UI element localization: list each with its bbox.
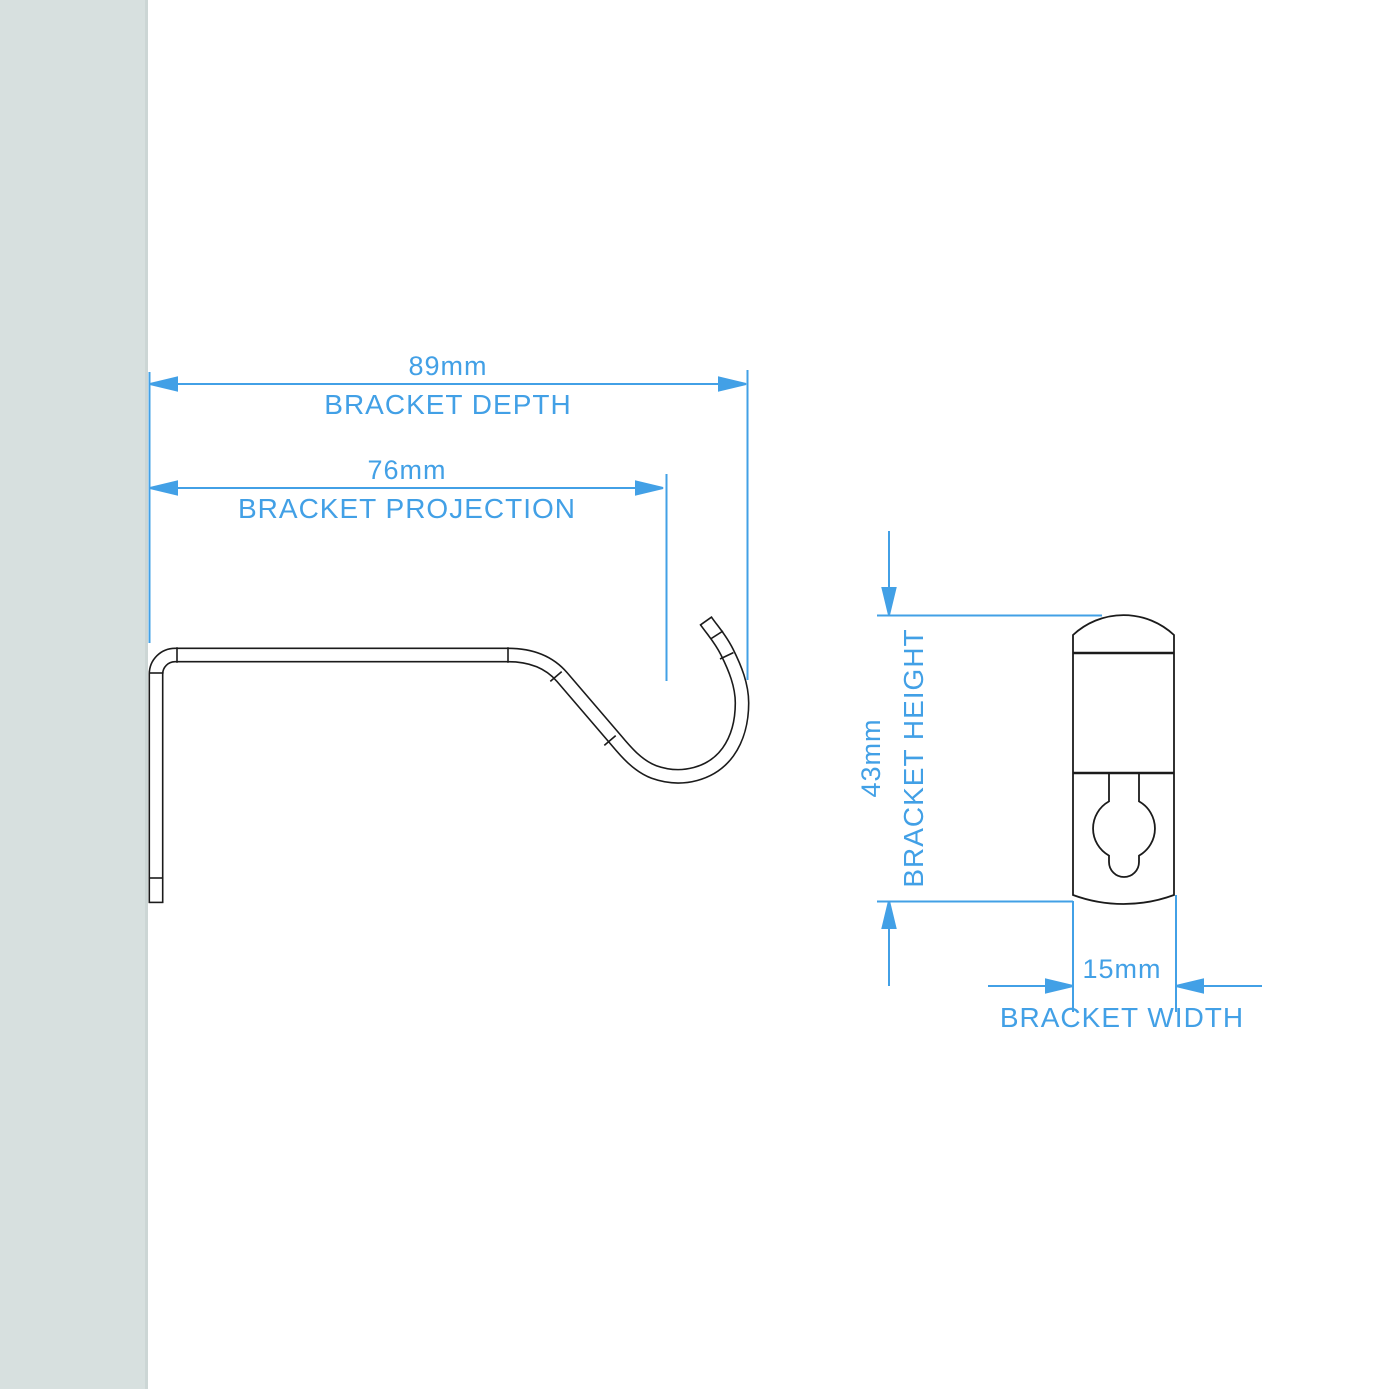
dimension-value: 76mm: [367, 455, 446, 485]
dimension-value: 43mm: [856, 718, 886, 797]
dimension-label: BRACKET PROJECTION: [238, 493, 576, 524]
dimension-label: BRACKET WIDTH: [1000, 1002, 1244, 1033]
dimension-arrow-icon: [150, 482, 177, 495]
dimension-height: 43mm BRACKET HEIGHT: [856, 531, 1102, 986]
dimension-label: BRACKET DEPTH: [324, 389, 571, 420]
dimension-arrow-icon: [636, 482, 663, 495]
dimension-arrow-icon: [883, 588, 896, 615]
dimension-label: BRACKET HEIGHT: [898, 628, 929, 887]
bracket-front-view: [1073, 615, 1174, 904]
dimension-arrow-icon: [1176, 980, 1203, 993]
dimension-value: 89mm: [408, 351, 487, 381]
dimension-arrow-icon: [719, 378, 746, 391]
dimension-arrow-icon: [883, 901, 896, 928]
bracket-side-view: [149, 617, 742, 903]
dimension-arrow-icon: [1046, 980, 1073, 993]
dimension-arrow-icon: [150, 378, 177, 391]
plate-outline: [1073, 615, 1174, 904]
diagram-page: 89mm BRACKET DEPTH 76mm BRACKET PROJECTI…: [0, 0, 1389, 1389]
bracket-profile-fill: [156, 621, 742, 903]
bracket-profile-outline: [156, 621, 742, 903]
dimension-value: 15mm: [1082, 954, 1161, 984]
dimension-width: 15mm BRACKET WIDTH: [988, 895, 1262, 1033]
dimension-projection: 76mm BRACKET PROJECTION: [150, 455, 667, 681]
technical-drawing: 89mm BRACKET DEPTH 76mm BRACKET PROJECTI…: [0, 0, 1389, 1389]
